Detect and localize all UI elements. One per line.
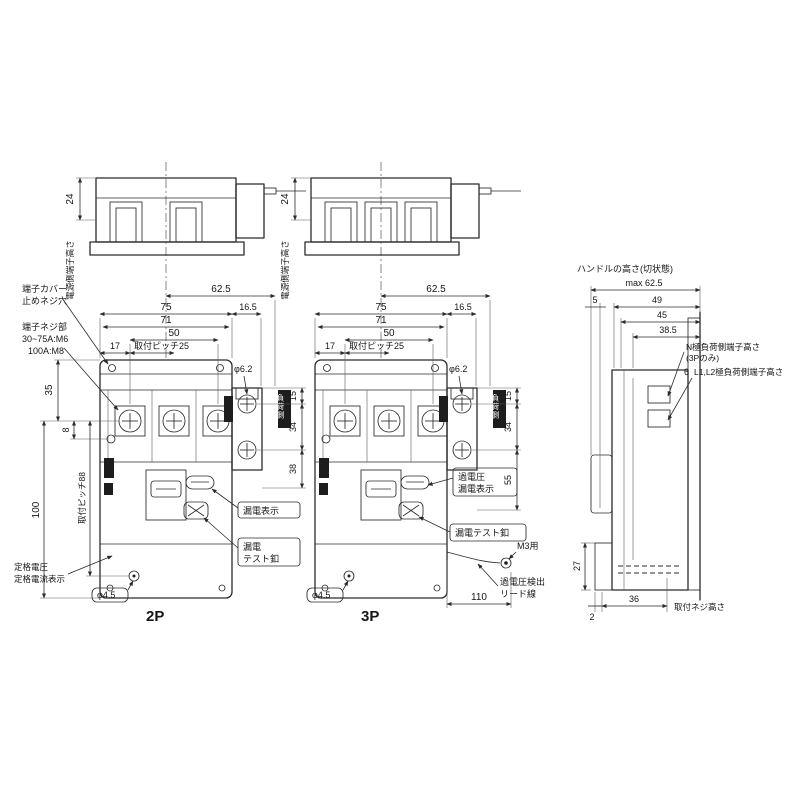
- handle-window-2p: [146, 470, 186, 520]
- side-terminal-upper: [648, 386, 670, 403]
- front-view-2p: 負荷側 φ6.2 15 34 38 62.5 75 16.5 71 50: [14, 283, 306, 625]
- dim-17-3p: 17: [325, 341, 335, 351]
- dim-24-2p: 24: [65, 193, 76, 205]
- dim-34-2p: 34: [288, 422, 298, 432]
- dim-62p5-3p: 62.5: [426, 284, 446, 295]
- terminal-screws-3p: [334, 410, 444, 432]
- dim-75-2p: 75: [160, 302, 172, 313]
- dim-55-3p: 55: [503, 475, 513, 485]
- dim-pitch25-3p: 取付ピッチ25: [349, 341, 404, 351]
- leak-indicator-3p: [401, 476, 429, 489]
- dim-62p5-2p: 62.5: [211, 284, 231, 295]
- label-terminal-screw-line3: 100A:M8: [28, 346, 64, 356]
- dim-24-3p: 24: [280, 193, 291, 205]
- label-phi45-3p: φ4.5: [312, 590, 330, 600]
- top-view-3p: 24 電源側端子高さ: [280, 162, 521, 358]
- label-test-button-3p: 漏電テスト釦: [455, 527, 509, 538]
- dim-110: 110: [471, 592, 487, 603]
- side-handle: [591, 455, 612, 513]
- side-foot: [595, 543, 612, 590]
- top-view-2p: 24 電源側端子高さ: [65, 162, 306, 358]
- label-mounting-screw-height: 取付ネジ高さ: [674, 602, 725, 612]
- label-2p: 2P: [146, 608, 164, 625]
- dim-75-3p: 75: [375, 302, 387, 313]
- label-overvoltage-line1: 過電圧: [458, 472, 485, 482]
- label-n-terminal-line2: (3Pのみ): [686, 353, 719, 363]
- dim-27: 27: [572, 561, 582, 571]
- label-phi62-3p: φ6.2: [449, 364, 467, 374]
- dim-15-2p: 15: [288, 391, 298, 401]
- label-terminal-screw-line1: 端子ネジ部: [22, 321, 67, 332]
- dim-36: 36: [629, 594, 639, 604]
- dim-34-3p: 34: [503, 422, 513, 432]
- dim-2: 2: [589, 612, 594, 622]
- side-view: ハンドルの高さ(切状態) max 62.5 5 49 45 38.5 N極負荷側…: [572, 263, 783, 622]
- dim-100-2p: 100: [31, 501, 42, 518]
- dim-45: 45: [657, 310, 667, 320]
- label-test-button-2p-line2: テスト釦: [243, 553, 279, 564]
- dim-16p5-3p: 16.5: [454, 302, 472, 312]
- label-lead-wire-line1: 過電圧検出: [500, 576, 545, 587]
- label-phi62-2p: φ6.2: [234, 364, 252, 374]
- load-terminal-block-2p: 負荷側: [224, 388, 291, 470]
- label-handle-height: ハンドルの高さ(切状態): [577, 263, 673, 274]
- label-phi45-2p: φ4.5: [97, 590, 115, 600]
- leak-indicator-2p: [186, 476, 214, 489]
- label-overvoltage-line2: 漏電表示: [458, 483, 494, 494]
- front-view-3p: 負荷側 φ6.2 15 34 55 62.5 75 16.5 71 50 17: [307, 284, 545, 625]
- load-side-badge-text-2p: 負荷側: [276, 393, 285, 420]
- dim-pitch88-2p: 取付ピッチ88: [77, 472, 87, 524]
- label-lead-wire-line2: リード線: [500, 588, 536, 599]
- label-source-terminal-height-3p: 電源側端子高さ: [280, 240, 290, 300]
- lead-wire: [447, 552, 500, 563]
- dim-16p5-2p: 16.5: [239, 302, 257, 312]
- label-rating-line1: 定格電圧: [14, 562, 49, 572]
- dim-15-3p: 15: [503, 391, 513, 401]
- dim-17-2p: 17: [110, 341, 120, 351]
- dim-35-2p: 35: [44, 384, 55, 396]
- dim-38p5: 38.5: [659, 325, 677, 335]
- dim-50-3p: 50: [383, 328, 395, 339]
- label-m3: M3用: [517, 541, 539, 551]
- breaker-dimension-drawing: 24 電源側端子高さ 24 電源側端子高さ: [0, 0, 800, 800]
- terminal-screws-2p: [119, 410, 229, 432]
- label-terminal-cover-line1: 端子カバー: [22, 283, 67, 294]
- label-n-terminal-line1: N極負荷側端子高さ: [686, 342, 760, 352]
- label-3p: 3P: [361, 608, 379, 625]
- dim-5: 5: [592, 295, 597, 305]
- dim-max-62p5: max 62.5: [625, 278, 662, 288]
- dim-50-2p: 50: [168, 328, 180, 339]
- dim-8-2p: 8: [61, 427, 71, 432]
- label-test-button-2p-line1: 漏電: [243, 541, 261, 552]
- label-l12-terminal: L1,L2極負荷側端子高さ: [694, 367, 783, 377]
- label-rating-line2: 定格電流表示: [14, 574, 65, 584]
- handle-window-3p: [361, 470, 401, 520]
- dim-71-3p: 71: [375, 315, 387, 326]
- dim-49: 49: [652, 295, 662, 305]
- dim-38-2p: 38: [288, 464, 298, 474]
- dim-71-2p: 71: [160, 315, 172, 326]
- dim-6: 6: [684, 367, 689, 377]
- label-leak-indicator-2p: 漏電表示: [243, 505, 279, 516]
- label-terminal-cover-line2: 止めネジ穴: [22, 295, 67, 306]
- load-terminal-block-3p: 負荷側: [439, 388, 506, 470]
- label-terminal-screw-line2: 30~75A:M6: [22, 334, 68, 344]
- side-terminal-lower: [648, 410, 670, 427]
- load-side-badge-text-3p: 負荷側: [491, 393, 500, 420]
- technical-drawing-page: 24 電源側端子高さ 24 電源側端子高さ: [0, 0, 800, 800]
- dim-pitch25-2p: 取付ピッチ25: [134, 341, 189, 351]
